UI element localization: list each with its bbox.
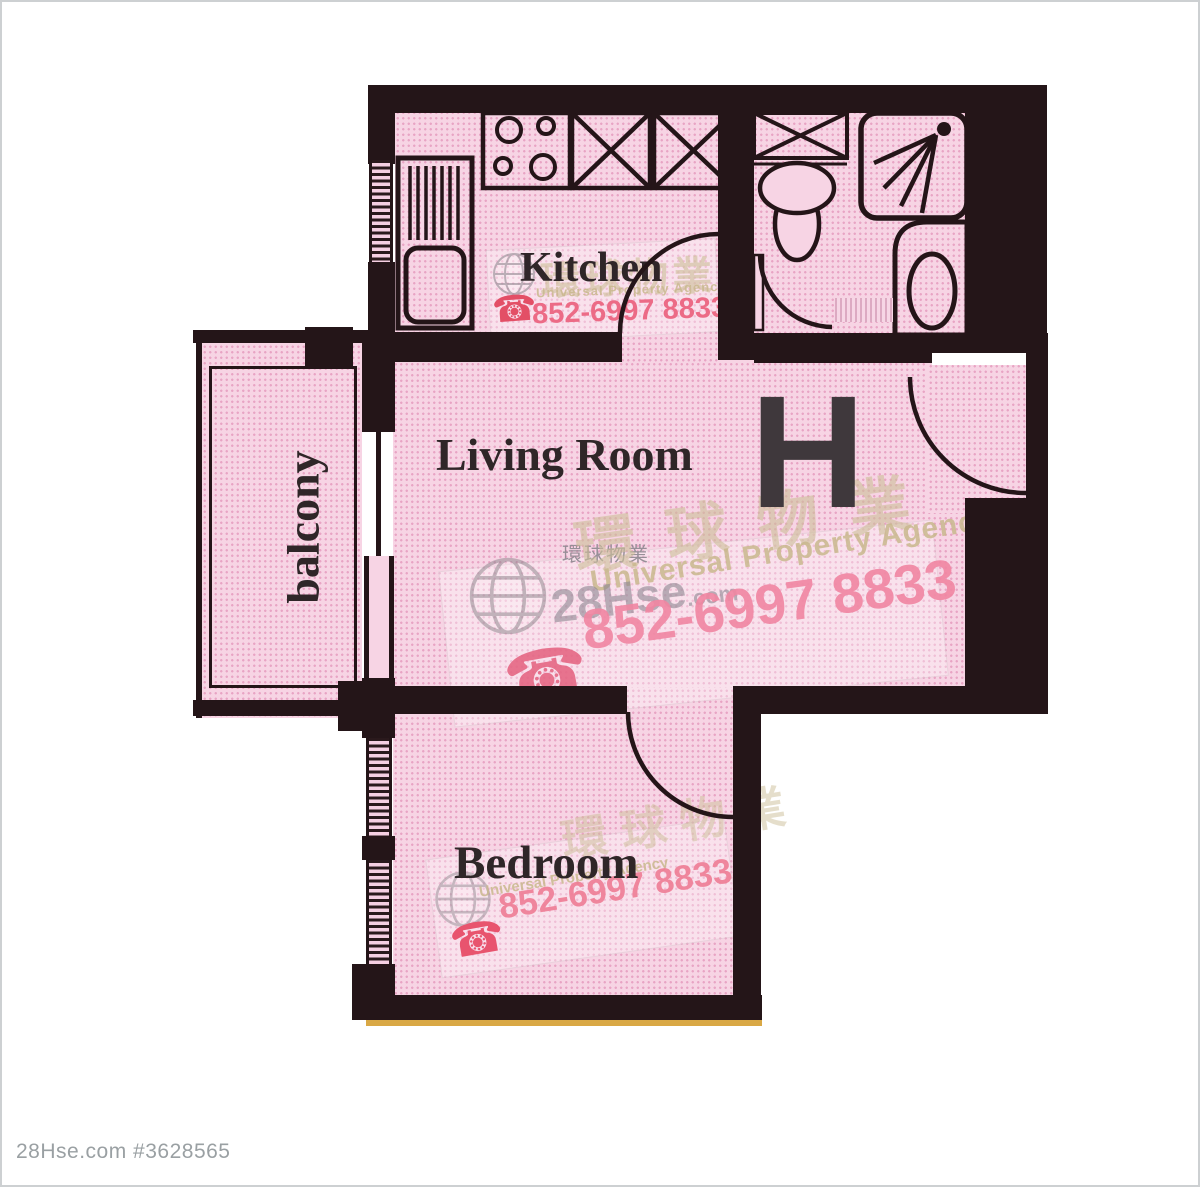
kitchen-door-arc (620, 234, 719, 333)
bedroom-door-arc (628, 712, 733, 817)
listing-id-text: 28Hse.com #3628565 (16, 1140, 230, 1164)
floor-plan: 環球物業 Universal Property Agency ☎ 852-699… (0, 0, 1200, 1187)
bathroom-door-arc (760, 254, 832, 327)
door-arcs-layer (0, 0, 1200, 1187)
entrance-door-arc (910, 377, 1026, 493)
